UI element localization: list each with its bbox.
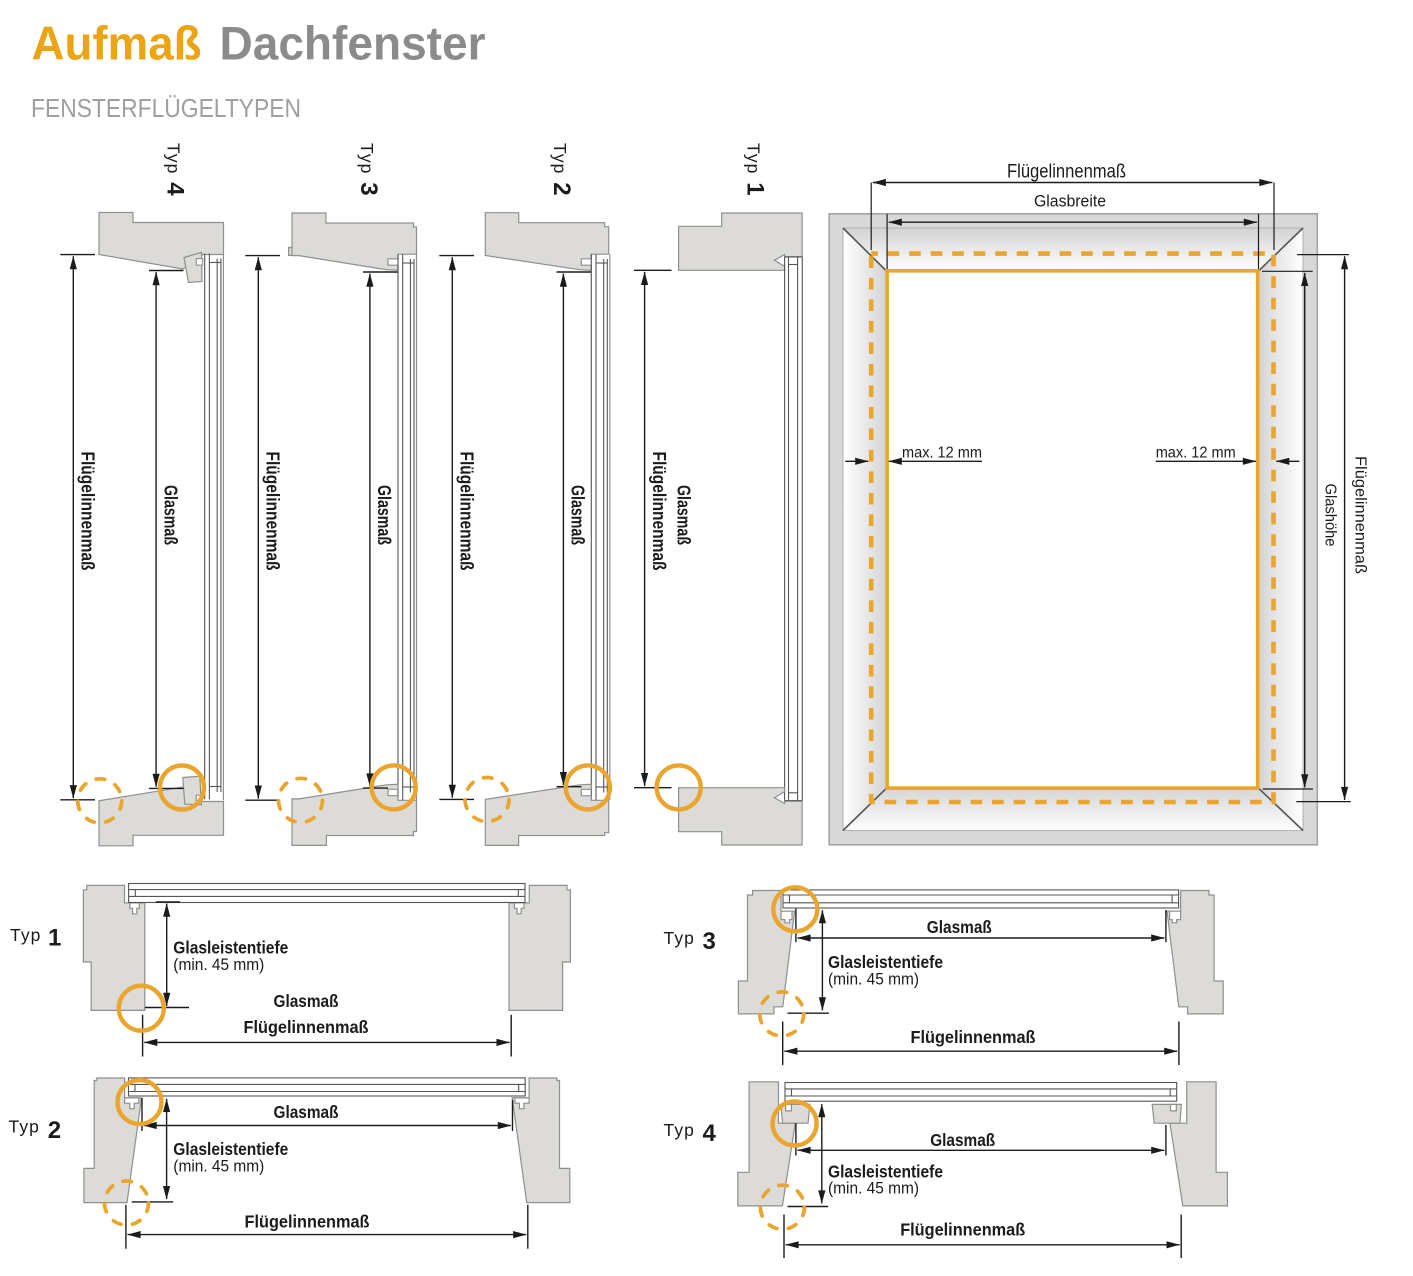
svg-text:(min. 45 mm): (min. 45 mm): [828, 969, 919, 988]
svg-text:Glasmaß: Glasmaß: [274, 1102, 339, 1122]
svg-text:Flügelinnenmaß: Flügelinnenmaß: [649, 452, 669, 571]
svg-text:3: 3: [703, 928, 716, 955]
svg-text:(min. 45 mm): (min. 45 mm): [173, 955, 264, 974]
svg-text:Typ: Typ: [10, 925, 42, 945]
svg-text:Flügelinnenmaß: Flügelinnenmaß: [457, 452, 477, 571]
svg-text:1: 1: [741, 182, 768, 195]
svg-text:Glasmaß: Glasmaß: [568, 485, 588, 545]
svg-text:Flügelinnenmaß: Flügelinnenmaß: [900, 1219, 1025, 1239]
svg-text:Aufmaß: Aufmaß: [32, 17, 202, 70]
svg-text:Flügelinnenmaß: Flügelinnenmaß: [1007, 162, 1126, 183]
svg-text:Glasbreite: Glasbreite: [1034, 192, 1106, 210]
svg-text:Glasmaß: Glasmaß: [673, 485, 693, 545]
svg-text:Glashöhe: Glashöhe: [1322, 484, 1339, 547]
svg-text:Glasmaß: Glasmaß: [160, 485, 180, 545]
svg-text:2: 2: [548, 182, 575, 195]
svg-text:Flügelinnenmaß: Flügelinnenmaß: [78, 452, 98, 571]
svg-text:Glasmaß: Glasmaß: [927, 917, 992, 937]
svg-text:Typ: Typ: [743, 143, 763, 175]
svg-text:Typ: Typ: [357, 143, 377, 175]
svg-text:FENSTERFLÜGELTYPEN: FENSTERFLÜGELTYPEN: [31, 93, 301, 123]
svg-text:Typ: Typ: [550, 143, 570, 175]
svg-text:Glasmaß: Glasmaß: [930, 1130, 995, 1150]
svg-text:max. 12 mm: max. 12 mm: [1156, 445, 1236, 462]
svg-text:Typ: Typ: [164, 143, 184, 175]
svg-text:Flügelinnenmaß: Flügelinnenmaß: [245, 1212, 370, 1232]
svg-text:1: 1: [48, 925, 61, 952]
svg-text:Flügelinnenmaß: Flügelinnenmaß: [263, 452, 283, 571]
svg-text:Typ: Typ: [9, 1117, 41, 1137]
svg-text:Glasmaß: Glasmaß: [374, 485, 394, 545]
svg-text:Flügelinnenmaß: Flügelinnenmaß: [911, 1027, 1036, 1047]
svg-text:Typ: Typ: [664, 1120, 696, 1140]
svg-text:(min. 45 mm): (min. 45 mm): [828, 1179, 919, 1198]
svg-text:Glasmaß: Glasmaß: [274, 991, 339, 1011]
svg-text:Dachfenster: Dachfenster: [220, 17, 486, 70]
svg-text:Typ: Typ: [664, 928, 696, 948]
svg-text:4: 4: [162, 182, 189, 196]
svg-text:max. 12 mm: max. 12 mm: [902, 445, 982, 462]
svg-text:Flügelinnenmaß: Flügelinnenmaß: [1351, 456, 1368, 574]
svg-text:3: 3: [355, 182, 382, 195]
svg-text:Flügelinnenmaß: Flügelinnenmaß: [244, 1017, 369, 1037]
svg-text:(min. 45 mm): (min. 45 mm): [173, 1156, 264, 1175]
svg-text:2: 2: [48, 1117, 61, 1144]
svg-text:4: 4: [703, 1120, 717, 1147]
